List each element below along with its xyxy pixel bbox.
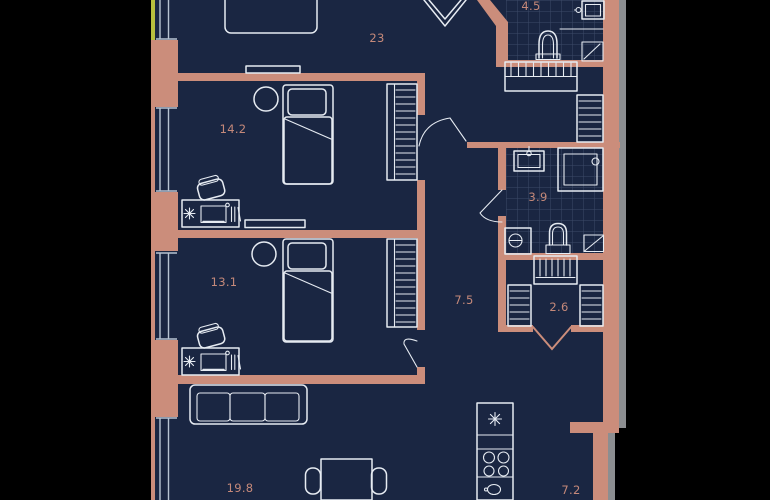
wall-pillar-2 — [155, 192, 178, 251]
snowflake-icon — [489, 413, 502, 426]
room-label-wardrobe-closet: 2.6 — [549, 300, 568, 314]
wall-hall-left-1 — [417, 73, 425, 115]
wall-hall-left-2 — [417, 180, 425, 330]
facade-frame-bottom — [608, 433, 615, 500]
facade-accent — [151, 0, 155, 40]
wall-living-bottom — [155, 73, 418, 81]
room-label-hallway: 7.5 — [454, 293, 473, 307]
room-label-bedroom-1: 14.2 — [220, 122, 247, 136]
wall-right-jog — [570, 422, 619, 433]
wall-bathroom2-left-1 — [498, 148, 506, 190]
floor-plan-svg: 23 14.2 13.1 7.5 4.5 3.9 2.6 19.8 7.2 — [0, 0, 770, 500]
tv-panel — [245, 220, 305, 228]
shell-notch — [615, 433, 626, 500]
room-label-bedroom-2: 13.1 — [211, 275, 238, 289]
asterisk-icon — [184, 356, 195, 367]
wall-right — [603, 0, 619, 422]
wall-bedroom2-bottom — [155, 375, 425, 384]
asterisk-icon — [184, 208, 195, 219]
wall-bedrooms-divider — [155, 230, 425, 238]
facade-frame-top — [619, 0, 626, 428]
room-label-living-bedroom: 23 — [369, 31, 384, 45]
wall-right-lower — [593, 433, 608, 500]
tv-panel — [246, 66, 300, 73]
room-label-kitchen: 7.2 — [561, 483, 580, 497]
room-label-living-dining: 19.8 — [227, 481, 254, 495]
floor-plan-viewer: 23 14.2 13.1 7.5 4.5 3.9 2.6 19.8 7.2 — [0, 0, 770, 500]
wall-nook-bottom — [467, 142, 620, 148]
wall-left-outer — [151, 40, 155, 500]
room-label-bathroom-2: 3.9 — [528, 190, 547, 204]
room-label-bathroom-1: 4.5 — [521, 0, 540, 13]
